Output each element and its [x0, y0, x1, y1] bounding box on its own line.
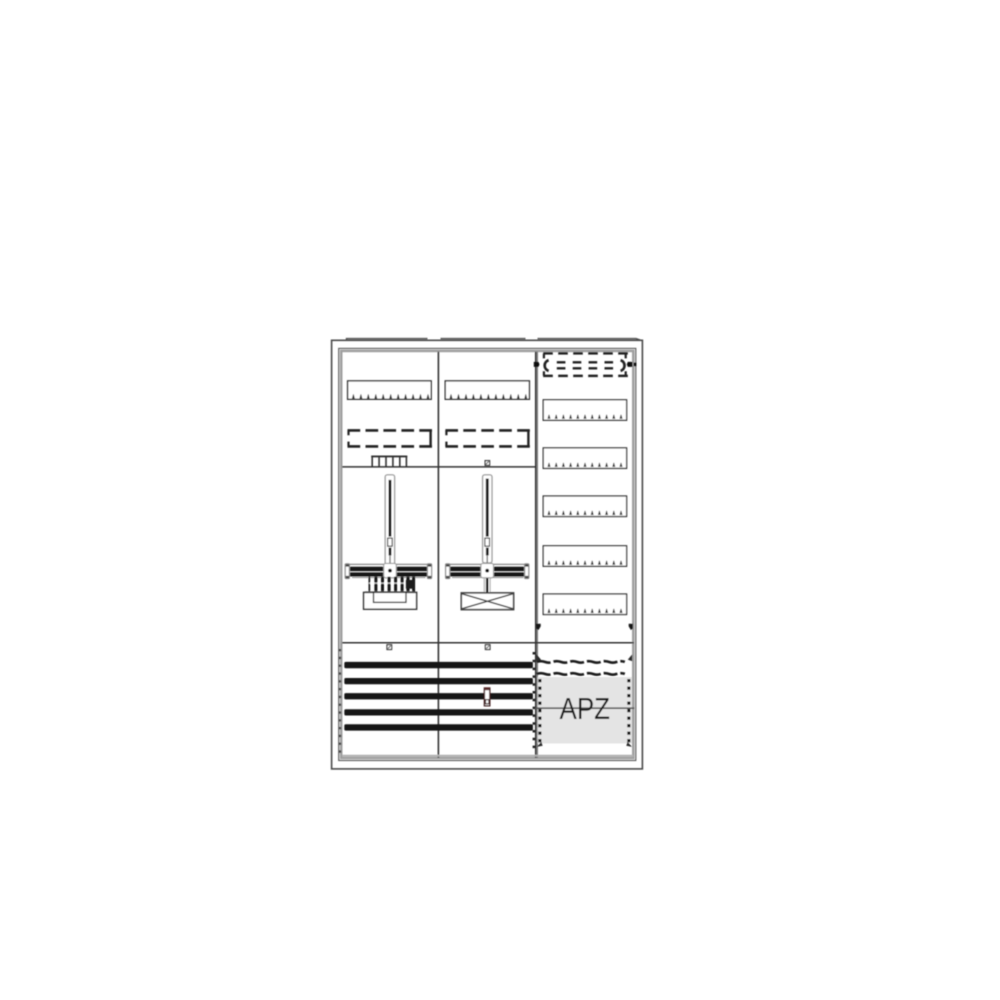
svg-text:APZ: APZ — [560, 692, 611, 726]
